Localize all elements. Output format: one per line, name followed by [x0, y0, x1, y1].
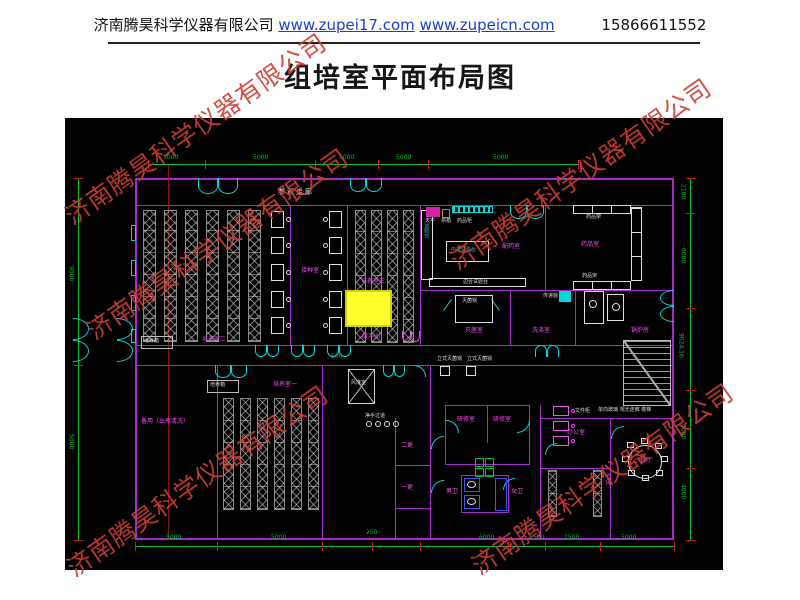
desk-icon: [553, 406, 569, 416]
label-change-2: 二更: [401, 443, 413, 449]
chair-icon: [641, 438, 648, 444]
dim-line-bottom: [135, 546, 674, 547]
dim-label: 4000: [679, 424, 685, 439]
dim-tick: [148, 160, 149, 169]
clean-bench: [329, 264, 342, 281]
autoclave-label: 立式灭菌锅: [437, 357, 462, 362]
door-icon: [350, 178, 382, 192]
shelf: [573, 205, 631, 214]
dim-tick: [420, 542, 421, 551]
chair-icon: [622, 456, 629, 462]
dim-tick: [217, 542, 218, 551]
dim-label: 6000: [679, 248, 685, 263]
culture-rack: [206, 210, 219, 342]
dim-tick: [686, 390, 695, 391]
machine-dial: [589, 300, 597, 308]
dim-tick: [372, 542, 373, 551]
chair-icon: [571, 439, 575, 443]
autoclave-box: [440, 366, 450, 376]
window-icon: [131, 225, 136, 241]
storage-shelf: [548, 470, 557, 517]
label-change-1: 一更: [401, 485, 413, 491]
dim-label: 250: [366, 530, 377, 536]
dim-label: 5000: [493, 155, 508, 161]
culture-rack: [185, 210, 198, 342]
dim-label: 5000: [253, 155, 268, 161]
shelf: [573, 281, 631, 290]
sink-icon: [366, 421, 372, 427]
highlight-box: [345, 290, 392, 327]
label-wash-room: 洗涤室: [532, 328, 550, 334]
dim-label: 5000: [621, 535, 636, 541]
culture-rack: [308, 398, 319, 510]
pass-window-label: 传递窗: [543, 294, 558, 299]
label-boiler-room: 锅炉房: [631, 328, 649, 334]
dim-label: 5000: [339, 155, 354, 161]
chair-icon: [627, 442, 634, 448]
label-storage: 仓库: [604, 473, 610, 485]
dim-label: 5000: [67, 434, 73, 449]
door-icon: [73, 318, 89, 362]
dim-tick: [378, 160, 379, 169]
header: 济南腾昊科学仪器有限公司 www.zupei17.com www.zupeicn…: [0, 14, 800, 35]
stool: [323, 217, 328, 222]
label-spare-room: 备用（出瓶清洗）: [141, 419, 189, 425]
door-icon: [383, 365, 405, 377]
dim-label: 2100: [679, 184, 685, 199]
glass-corridor-label: 单向玻璃 观光走廊 楼梯: [598, 408, 651, 413]
med-shelf-label: 药品架: [586, 215, 601, 220]
chair-icon: [656, 470, 663, 476]
clean-bench: [271, 317, 284, 334]
dim-label: 1500: [529, 535, 544, 541]
side-bench-label: 试验台: [423, 223, 428, 238]
incubator-label: 培养箱: [210, 383, 225, 388]
dim-label: 5000: [166, 535, 181, 541]
wall-segment: [395, 465, 430, 466]
sterilizer-label: 灭菌锅: [462, 299, 477, 304]
dim-tick: [578, 160, 579, 169]
study-rooms-outline: [445, 405, 530, 465]
company-name: 济南腾昊科学仪器有限公司: [94, 16, 274, 34]
boiler-machine-icon: [584, 291, 604, 324]
pass-window-icon: [559, 291, 571, 302]
clean-bench: [271, 211, 284, 228]
label-culture-room-1: 培养室一: [273, 382, 297, 388]
window-icon: [131, 295, 136, 311]
label-handwash: 净手过道: [365, 414, 385, 419]
door-icon: [255, 345, 279, 357]
stairs: [623, 340, 671, 406]
culture-rack: [274, 398, 285, 510]
label-office: 办公室: [567, 430, 585, 436]
dim-label: 500: [331, 354, 342, 360]
stool: [286, 297, 291, 302]
wall-segment: [395, 418, 396, 540]
dim-label: 2500: [564, 535, 579, 541]
link-zupeicn[interactable]: www.zupeicn.com: [420, 16, 555, 34]
dim-label: 9000: [67, 266, 73, 281]
stool: [323, 297, 328, 302]
window-icon: [131, 260, 136, 276]
wall-segment: [420, 290, 674, 291]
culture-rack: [143, 210, 156, 342]
wall-segment: [510, 290, 511, 345]
equipment-strip: [452, 206, 493, 213]
air-shower-box: [348, 369, 375, 404]
wall-segment: [540, 468, 610, 469]
shelf: [631, 207, 642, 281]
dim-tick: [686, 308, 695, 309]
clean-bench: [329, 211, 342, 228]
machine-dial: [612, 303, 620, 311]
door-icon: [510, 205, 544, 219]
oven-icon: [442, 209, 450, 218]
stool: [323, 243, 328, 248]
dim-label: 5000: [163, 155, 178, 161]
dim-line-right: [690, 178, 691, 540]
autoclave-label: 立式灭菌锅: [467, 357, 492, 362]
label-dining: 小餐厅: [634, 458, 652, 464]
wall-segment: [430, 365, 431, 540]
boiler-machine-icon: [607, 294, 624, 321]
culture-rack: [291, 398, 302, 510]
culture-rack: [257, 398, 268, 510]
dim-label: 5000: [396, 155, 411, 161]
label-buffer-room: 缓冲间: [362, 334, 380, 340]
wall-segment: [540, 418, 674, 419]
culture-rack: [240, 398, 251, 510]
culture-rack: [248, 210, 261, 342]
label-medicine-room: 药品室: [581, 242, 599, 248]
window-icon: [131, 329, 136, 343]
locker-icon: [475, 458, 484, 467]
locker-icon: [475, 468, 484, 477]
toilet-bowl-icon: [467, 481, 476, 488]
label-inoculation-room: 接种室: [301, 268, 319, 274]
label-study-1: 研修室: [457, 417, 475, 423]
toilet-stall: [495, 478, 507, 511]
dim-tick: [135, 542, 136, 551]
label-sterilize-room: 灭菌室: [465, 328, 483, 334]
dim-label: 9024.16: [677, 333, 683, 358]
dim-label: 4000: [679, 484, 685, 499]
autoclave-box: [466, 366, 476, 376]
dim-tick: [686, 468, 695, 469]
label-toilet-male: 男卫: [446, 489, 458, 495]
stool: [286, 270, 291, 275]
door-icon: [535, 345, 559, 357]
wall-segment: [135, 345, 674, 346]
chair-icon: [661, 456, 668, 462]
door-icon: [660, 290, 674, 322]
stool: [323, 270, 328, 275]
med-shelf-label: 药品架: [582, 274, 597, 279]
page: 济南腾昊科学仪器有限公司 www.zupei17.com www.zupeicn…: [0, 0, 800, 600]
header-divider: [108, 42, 700, 44]
dim-label: 6000: [479, 535, 494, 541]
culture-rack: [223, 398, 234, 510]
chair-icon: [628, 470, 635, 476]
wall-segment: [540, 405, 541, 540]
incubator-label: 培养箱: [144, 339, 159, 344]
dim-tick: [686, 213, 695, 214]
chair-icon: [571, 424, 575, 428]
label-toilet-female: 女卫: [511, 489, 523, 495]
desk-icon: [553, 436, 569, 446]
floorplan-canvas: 参观走廊培养室二培养箱接种室培养室三缓冲间配药室药品室药品架药品架天平烘箱药品柜…: [65, 118, 723, 570]
wall-segment: [575, 290, 576, 345]
dim-tick: [510, 542, 511, 551]
label-culture-room-2: 培养室二: [202, 337, 226, 343]
label-culture-room-3: 培养室三: [361, 279, 385, 285]
sink-icon: [393, 421, 399, 427]
clean-bench: [271, 291, 284, 308]
wall-segment: [395, 508, 430, 509]
door-icon: [198, 178, 238, 194]
clean-bench: [329, 291, 342, 308]
stool: [286, 217, 291, 222]
storage-shelf: [593, 470, 602, 517]
dim-tick: [686, 540, 695, 541]
locker-icon: [485, 458, 494, 467]
dim-tick: [686, 178, 695, 179]
sink-icon: [375, 421, 381, 427]
dim-line-top: [148, 164, 578, 165]
toilet-bowl-icon: [467, 498, 476, 505]
wall-segment: [322, 365, 323, 540]
stool: [286, 323, 291, 328]
wall-segment: [545, 205, 546, 290]
dim-tick: [322, 542, 323, 551]
chair-icon: [655, 443, 662, 449]
dim-tick: [600, 542, 601, 551]
sink-icon: [384, 421, 390, 427]
clean-bench: [271, 237, 284, 254]
fridge-icon: [426, 207, 440, 217]
locker-icon: [485, 468, 494, 477]
dim-tick: [205, 160, 206, 169]
corridor-label: 参观走廊: [278, 189, 314, 196]
door-icon: [402, 331, 420, 342]
clean-bench: [329, 317, 342, 334]
dim-tick: [428, 160, 429, 169]
culture-rack: [227, 210, 240, 342]
label-air-shower: 风淋室: [351, 381, 366, 386]
dim-tick: [74, 540, 83, 541]
oven-label: 烘箱: [441, 219, 451, 224]
cabinet-label: 药品柜: [457, 219, 472, 224]
label-study-2: 研修室: [493, 417, 511, 423]
stool: [323, 323, 328, 328]
dim-tick: [674, 542, 675, 551]
dim-tick: [74, 365, 83, 366]
file-cabinet-label: 文件柜: [575, 409, 590, 414]
page-title: 组培室平面布局图: [0, 56, 800, 95]
link-zupei17[interactable]: www.zupei17.com: [278, 16, 414, 34]
stool: [286, 243, 291, 248]
door-icon: [215, 365, 247, 378]
door-icon: [291, 345, 315, 357]
clean-bench: [329, 237, 342, 254]
clean-bench: [271, 264, 284, 281]
dim-tick: [74, 178, 83, 179]
dim-label: 5000: [271, 535, 286, 541]
central-bench-label: 中央试验台: [451, 248, 476, 253]
label-prep-room: 配药室: [502, 244, 520, 250]
long-bench-label: 边台试验台: [463, 280, 488, 285]
dim-tick: [545, 542, 546, 551]
culture-rack: [164, 210, 177, 342]
phone-number: 15866611552: [601, 16, 706, 34]
chair-icon: [642, 475, 649, 481]
dim-tick: [315, 160, 316, 169]
culture-rack: [403, 210, 414, 343]
